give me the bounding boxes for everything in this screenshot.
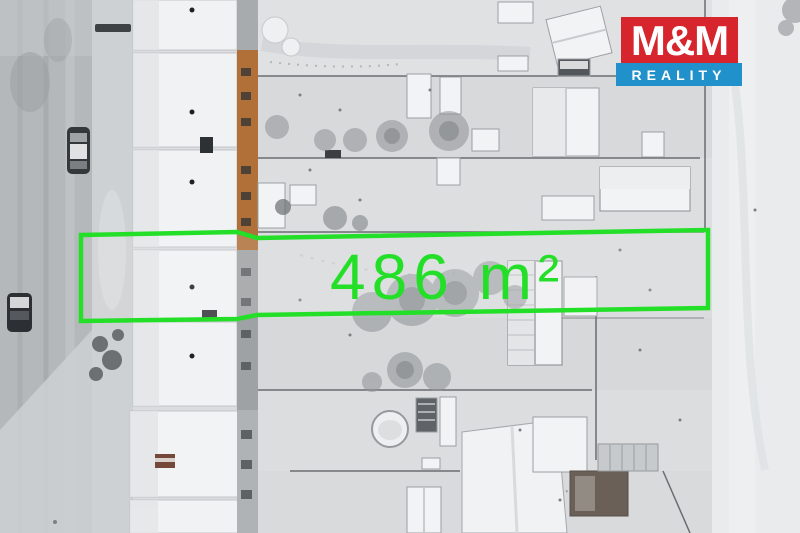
realty-logo: M&M REALITY xyxy=(616,17,742,86)
parked-car-top xyxy=(67,127,90,174)
parked-car-bottom xyxy=(7,293,32,332)
front-fence xyxy=(95,24,131,32)
aerial-photo: 486 m² M&M REALITY xyxy=(0,0,800,533)
logo-reality-text: REALITY xyxy=(616,63,742,86)
logo-mm-text: M&M xyxy=(621,17,738,63)
plot-area-label: 486 m² xyxy=(330,245,565,309)
